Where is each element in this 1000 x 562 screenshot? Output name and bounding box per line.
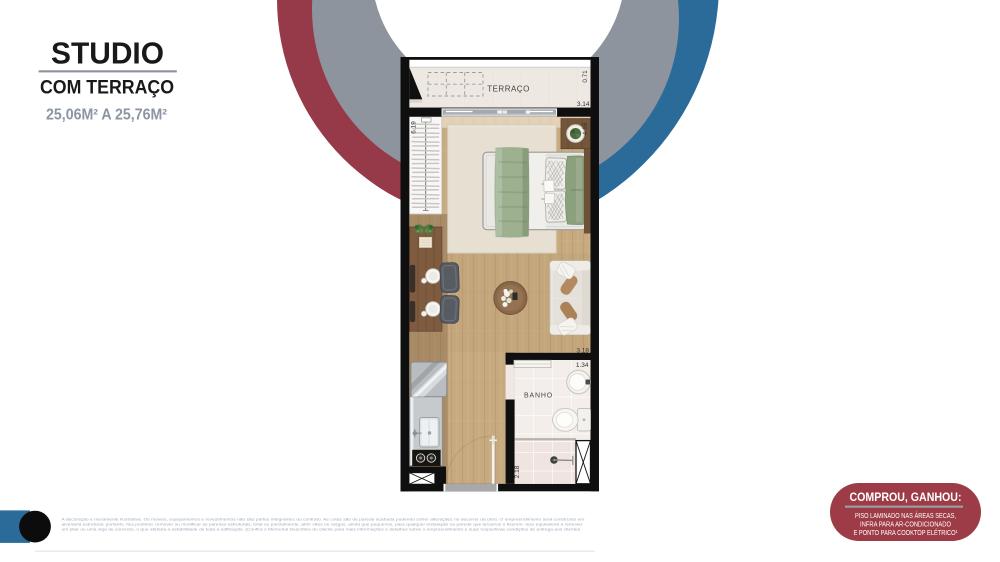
- svg-text:6.19: 6.19: [411, 121, 418, 134]
- svg-text:25,06M² A 25,76M²: 25,06M² A 25,76M²: [46, 107, 167, 124]
- svg-text:TERRAÇO: TERRAÇO: [487, 85, 530, 94]
- svg-text:0.71: 0.71: [582, 70, 589, 83]
- svg-text:um pilar ou uma viga de concre: um pilar ou uma viga de concreto, o que …: [62, 527, 582, 532]
- svg-text:COM TERRAÇO: COM TERRAÇO: [40, 78, 174, 99]
- svg-text:3.14: 3.14: [577, 101, 590, 108]
- svg-text:COMPROU, GANHOU:: COMPROU, GANHOU:: [850, 492, 962, 504]
- svg-text:INFRA PARA AR-CONDICIONADO: INFRA PARA AR-CONDICIONADO: [860, 522, 951, 529]
- svg-text:1.34: 1.34: [576, 362, 589, 369]
- svg-text:4.16: 4.16: [582, 122, 589, 135]
- svg-text:STUDIO: STUDIO: [51, 36, 164, 71]
- svg-text:BANHO: BANHO: [524, 393, 553, 400]
- svg-text:PISO LAMINADO NAS ÁREAS SECAS,: PISO LAMINADO NAS ÁREAS SECAS,: [855, 511, 956, 520]
- svg-text:E PONTO PARA COOKTOP ELÉTRICO¹: E PONTO PARA COOKTOP ELÉTRICO¹: [854, 528, 959, 537]
- svg-text:2.18: 2.18: [514, 465, 521, 478]
